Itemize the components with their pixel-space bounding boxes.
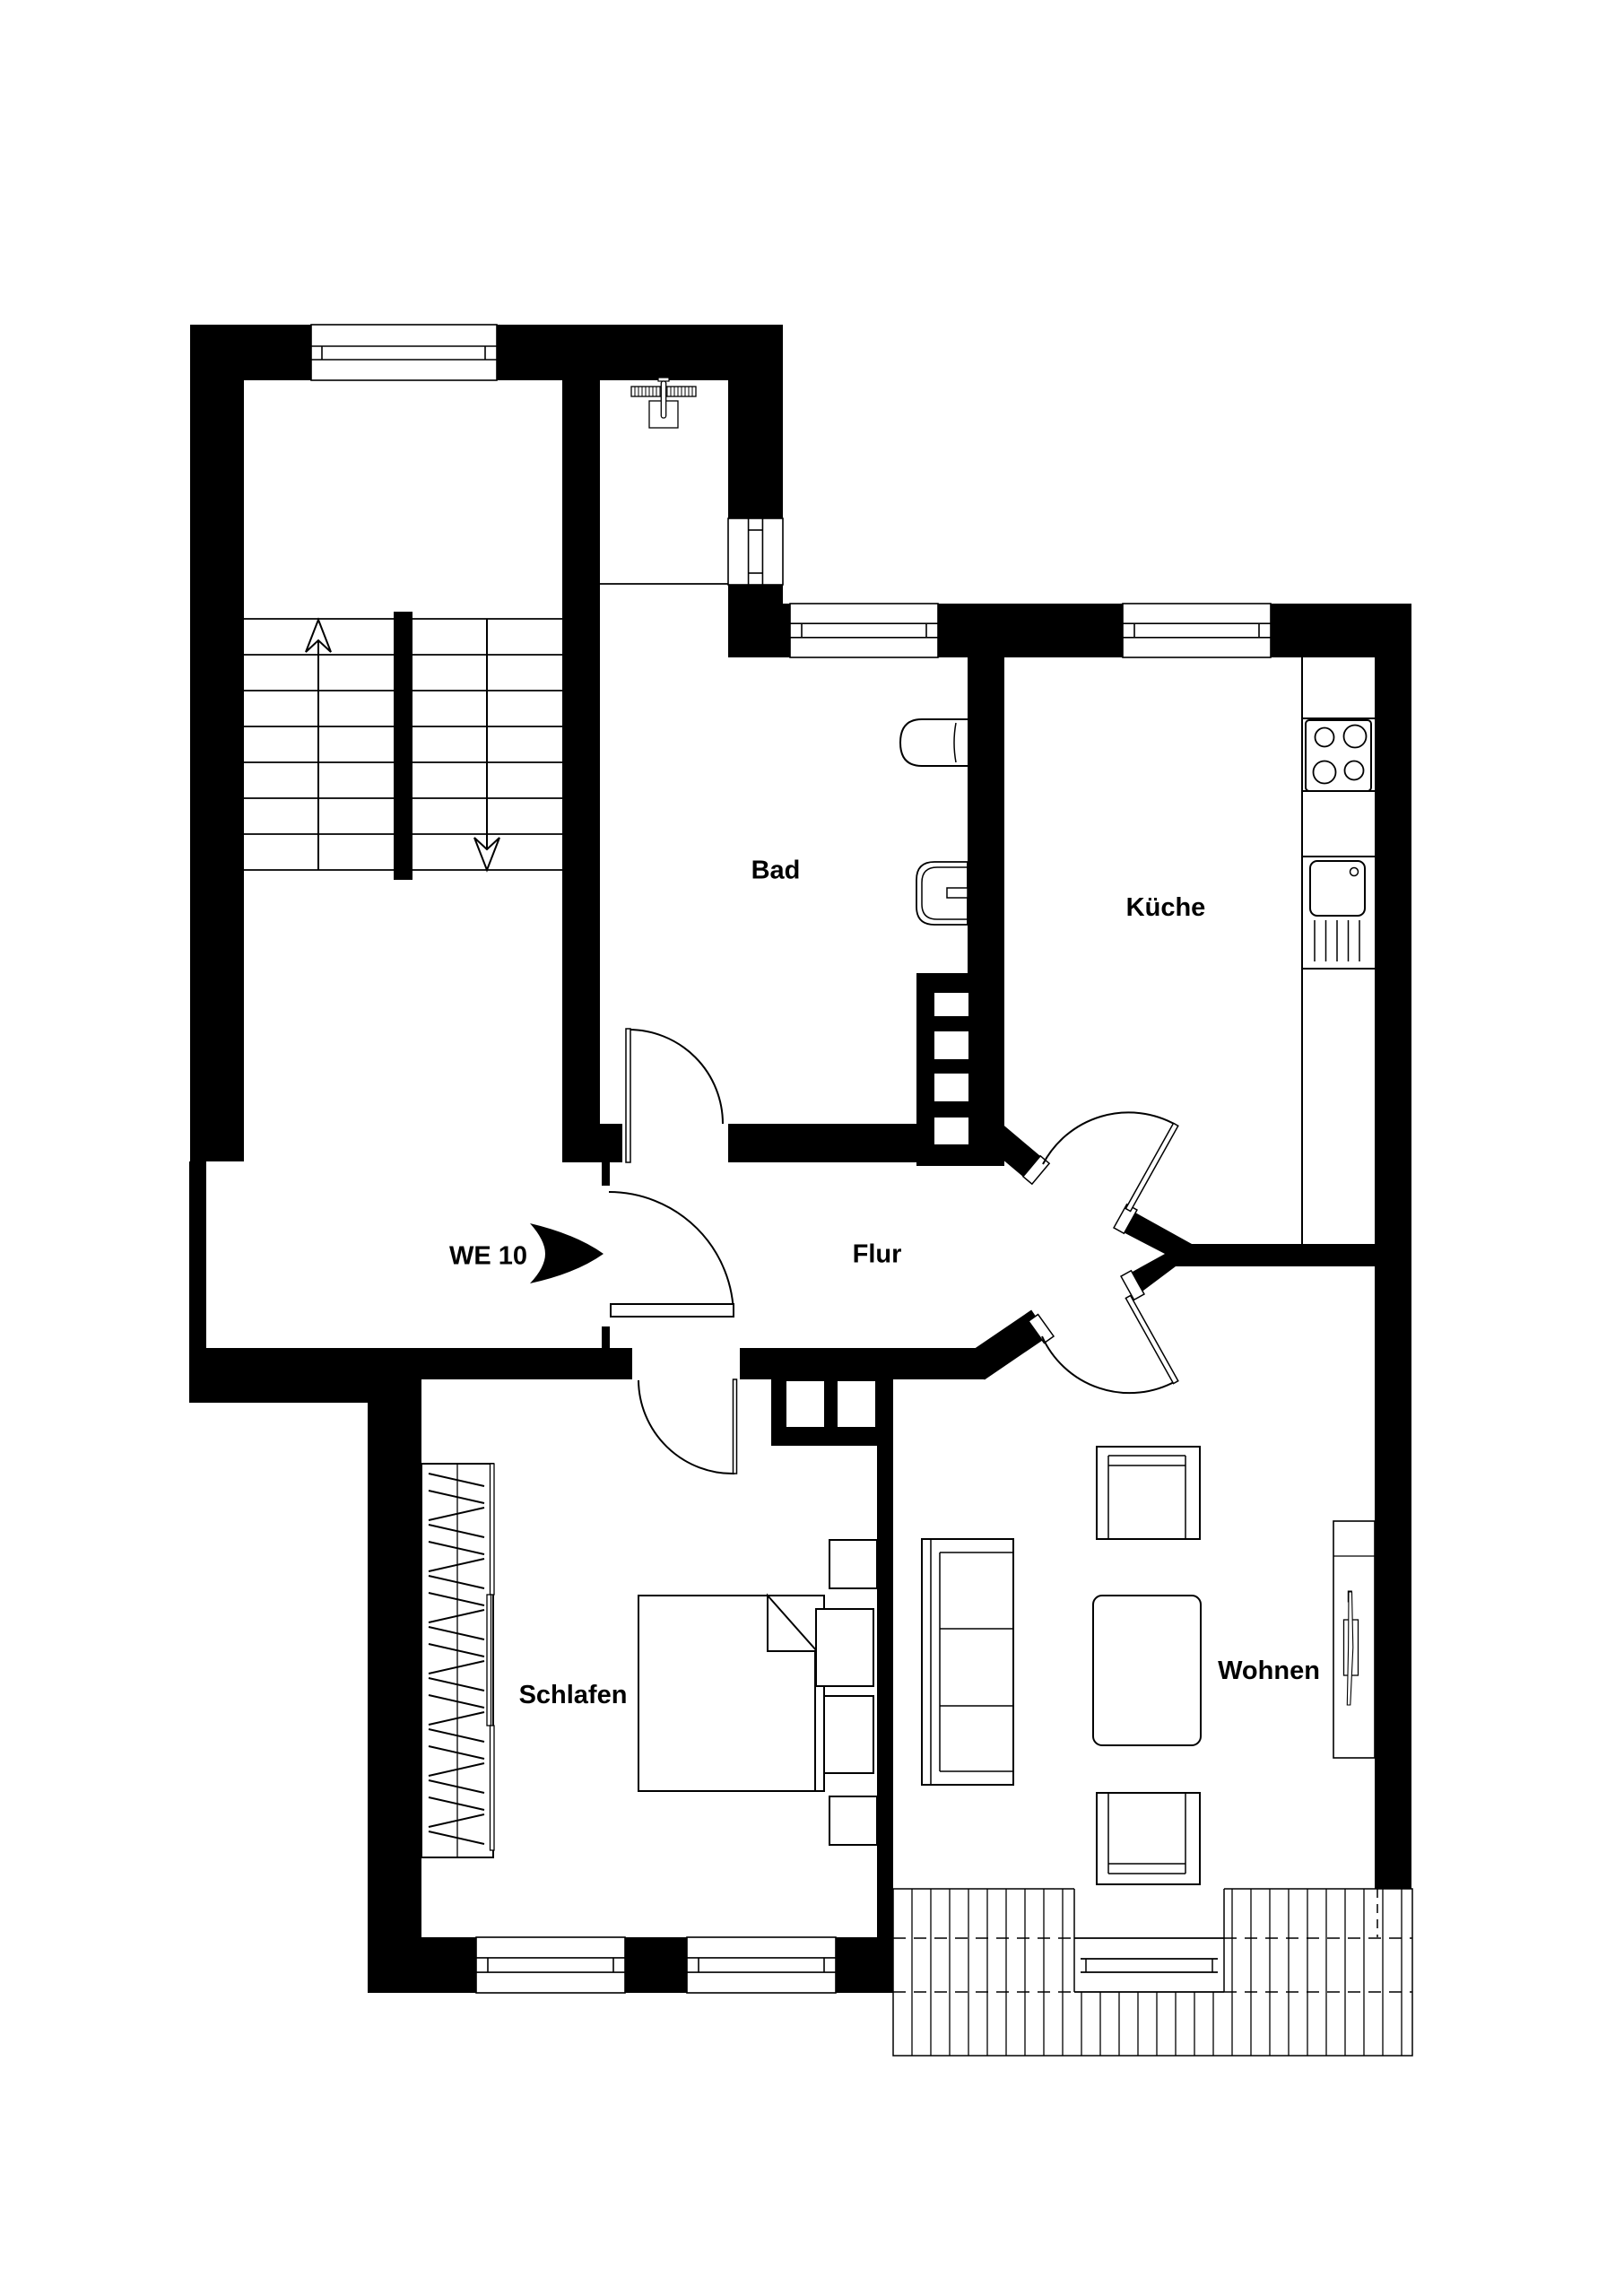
- svg-text:Bad: Bad: [751, 857, 801, 885]
- svg-text:Küche: Küche: [1126, 893, 1206, 922]
- svg-text:Wohnen: Wohnen: [1218, 1657, 1320, 1685]
- svg-text:Flur: Flur: [853, 1240, 902, 1269]
- svg-text:Schlafen: Schlafen: [519, 1681, 628, 1709]
- svg-text:WE 10: WE 10: [449, 1242, 527, 1271]
